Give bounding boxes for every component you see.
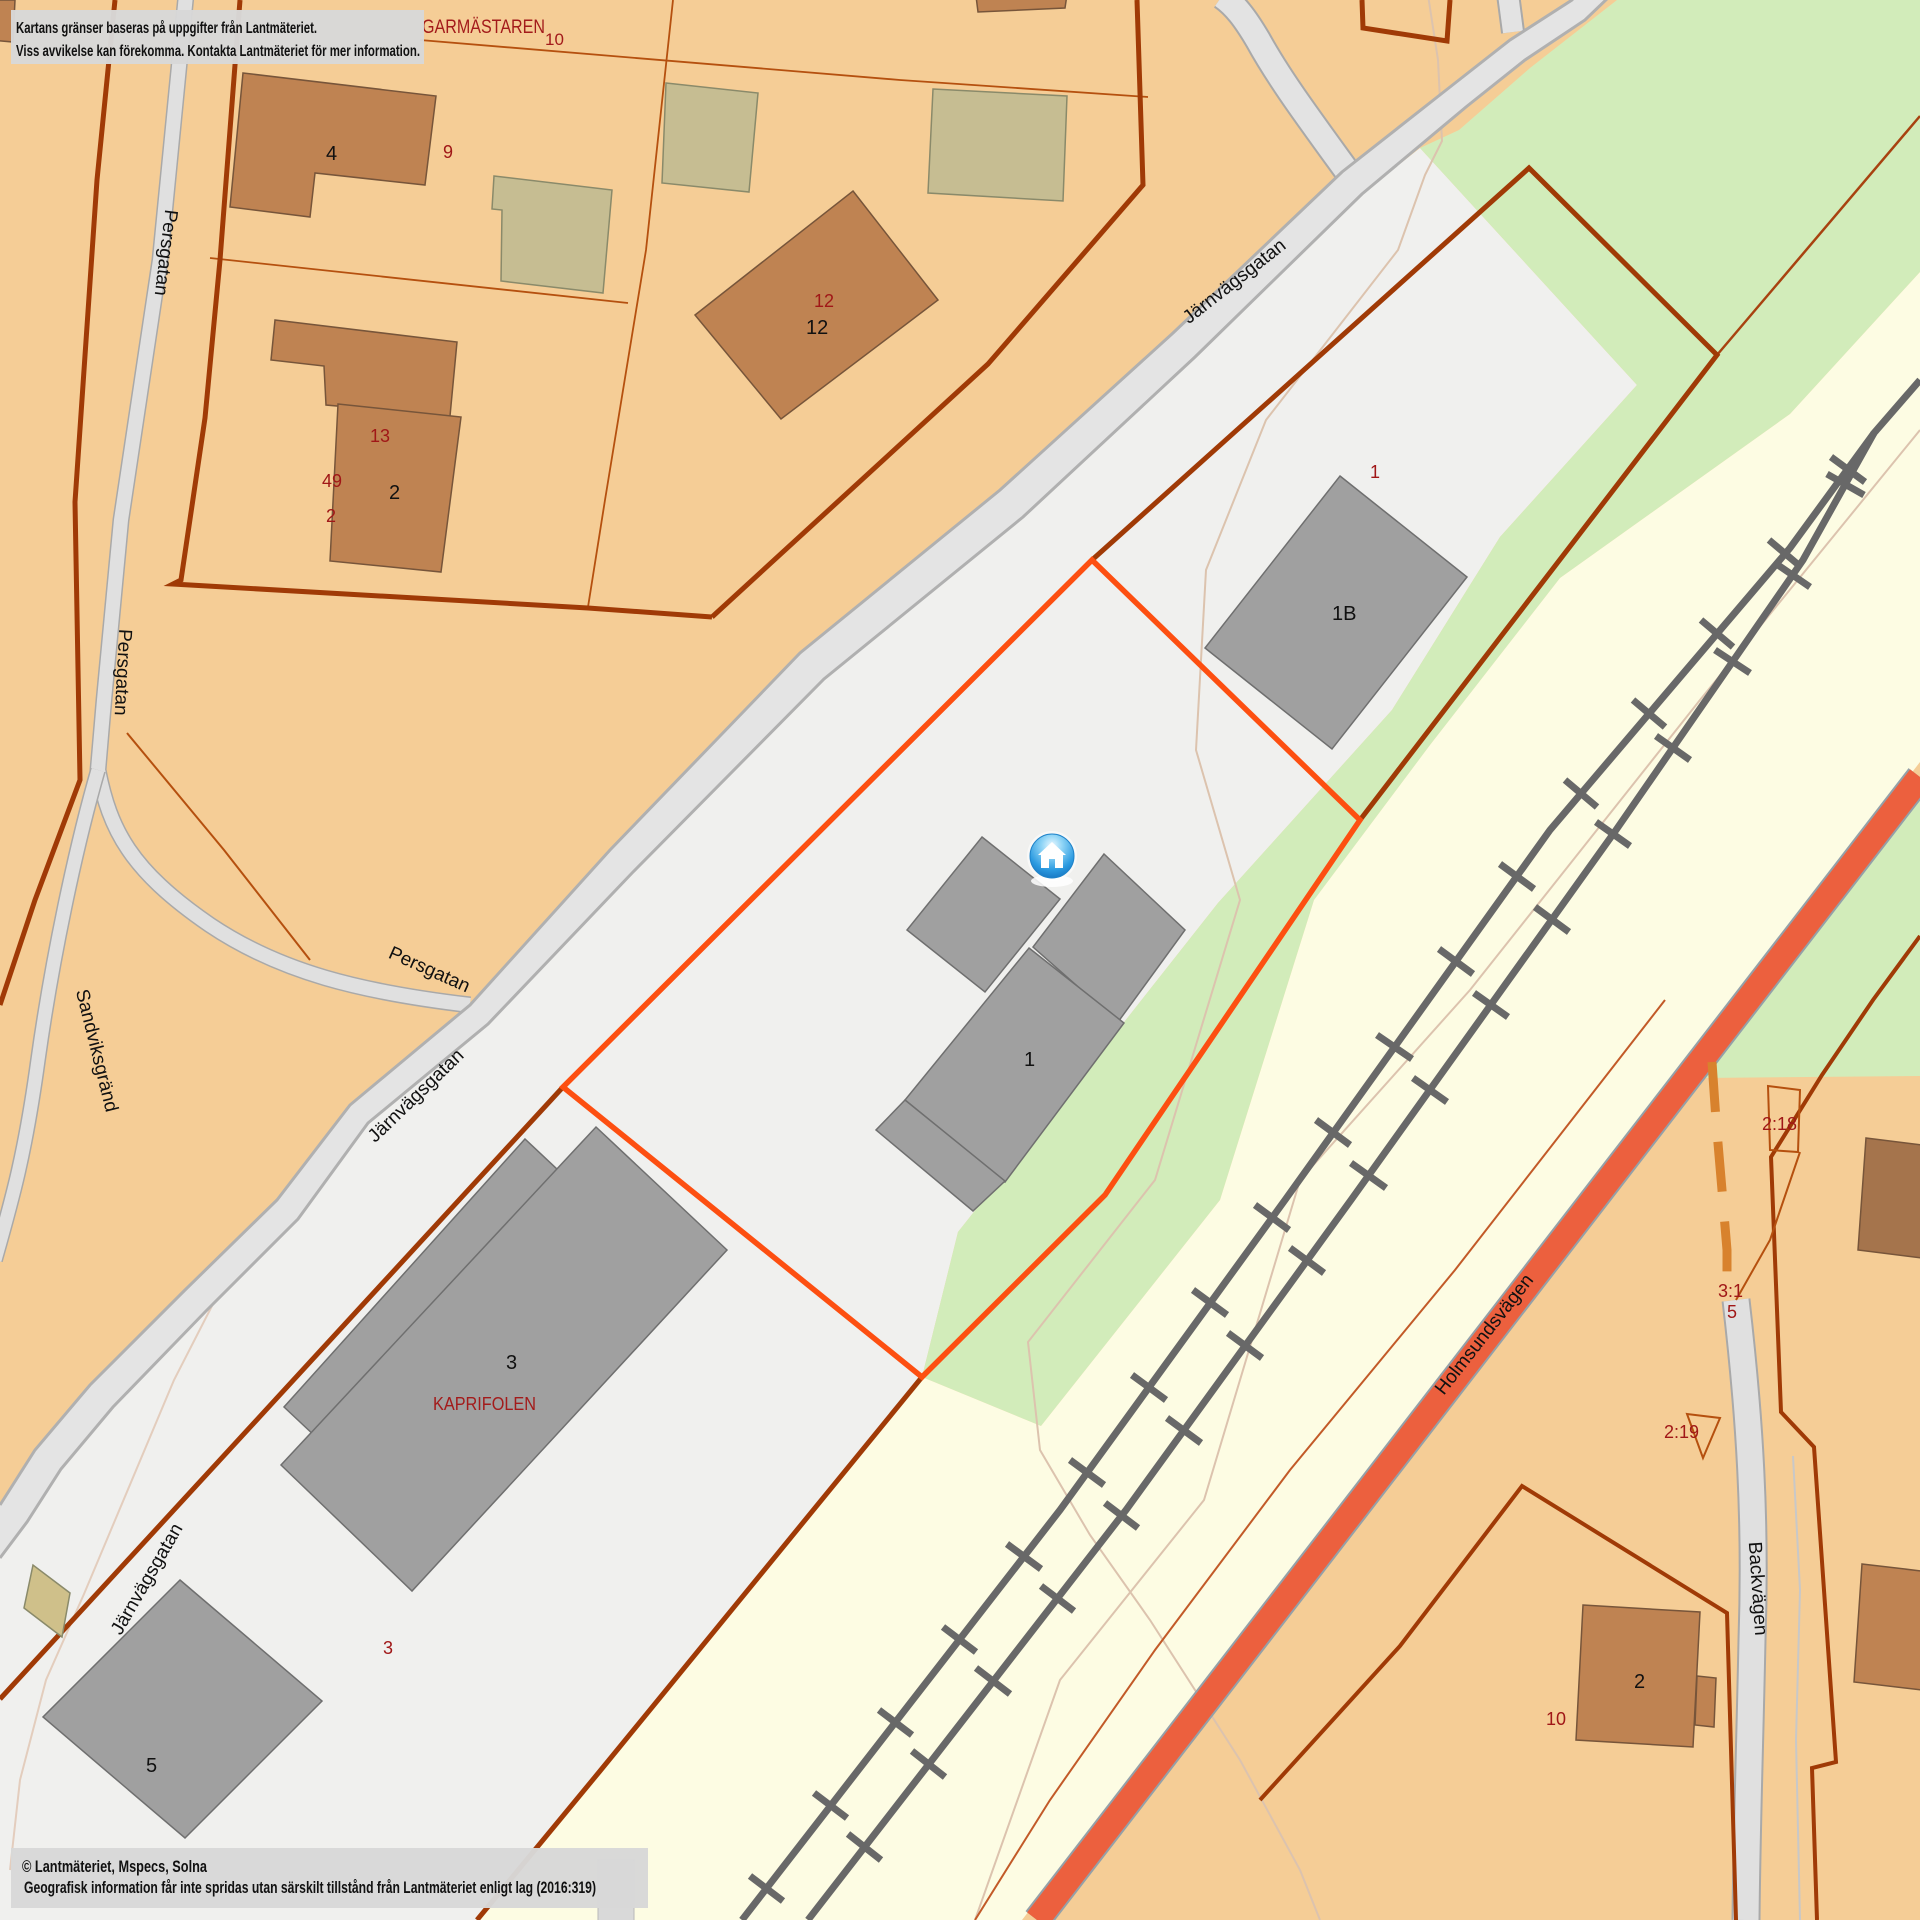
svg-text:GARMÄSTAREN: GARMÄSTAREN xyxy=(422,17,545,38)
svg-text:10: 10 xyxy=(1546,1709,1566,1729)
svg-text:3: 3 xyxy=(506,1352,517,1374)
svg-text:5: 5 xyxy=(146,1755,157,1777)
svg-text:13: 13 xyxy=(370,426,390,446)
svg-text:KAPRIFOLEN: KAPRIFOLEN xyxy=(433,1394,536,1414)
svg-text:1B: 1B xyxy=(1332,603,1356,625)
svg-text:1: 1 xyxy=(1370,462,1380,482)
svg-text:© Lantmäteriet, Mspecs, Solna: © Lantmäteriet, Mspecs, Solna xyxy=(22,1857,207,1876)
svg-text:2: 2 xyxy=(1634,1671,1645,1693)
svg-text:12: 12 xyxy=(806,317,828,339)
svg-text:49: 49 xyxy=(322,471,342,491)
svg-text:3:1: 3:1 xyxy=(1718,1281,1743,1301)
svg-text:Viss avvikelse kan förekomma.: Viss avvikelse kan förekomma. Kontakta L… xyxy=(16,43,420,60)
svg-text:2: 2 xyxy=(389,482,400,504)
svg-text:12: 12 xyxy=(814,291,834,311)
svg-text:Geografisk information får int: Geografisk information får inte spridas … xyxy=(24,1878,596,1897)
svg-text:2:18: 2:18 xyxy=(1762,1114,1797,1134)
svg-text:4: 4 xyxy=(326,143,337,165)
svg-text:2:19: 2:19 xyxy=(1664,1422,1699,1442)
svg-text:10: 10 xyxy=(545,30,564,49)
svg-text:5: 5 xyxy=(1727,1302,1737,1322)
svg-text:9: 9 xyxy=(443,142,453,162)
svg-text:1: 1 xyxy=(1024,1049,1035,1071)
svg-text:3: 3 xyxy=(383,1638,393,1658)
svg-text:2: 2 xyxy=(326,506,336,526)
svg-text:Kartans gränser baseras på upp: Kartans gränser baseras på uppgifter frå… xyxy=(16,19,317,37)
